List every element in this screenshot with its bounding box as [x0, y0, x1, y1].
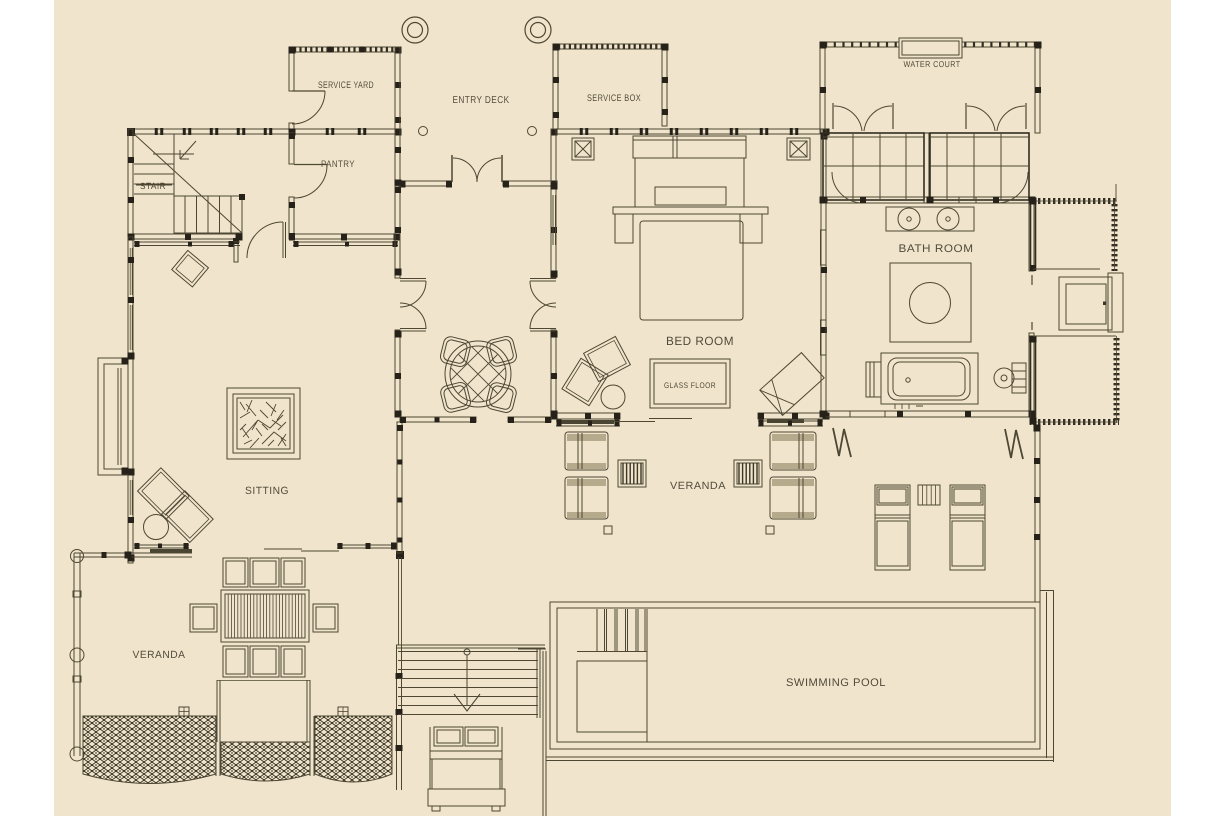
svg-text:GLASS FLOOR: GLASS FLOOR [664, 381, 716, 390]
svg-text:STAIR: STAIR [140, 181, 166, 191]
svg-text:WATER COURT: WATER COURT [904, 59, 961, 69]
svg-text:ENTRY DECK: ENTRY DECK [453, 95, 510, 106]
svg-text:SERVICE BOX: SERVICE BOX [587, 93, 641, 104]
svg-text:VERANDA: VERANDA [133, 649, 186, 661]
svg-text:SITTING: SITTING [245, 485, 289, 497]
svg-text:VERANDA: VERANDA [670, 480, 726, 492]
svg-text:SERVICE YARD: SERVICE YARD [318, 80, 374, 91]
svg-text:BATH ROOM: BATH ROOM [899, 243, 974, 255]
svg-text:SWIMMING POOL: SWIMMING POOL [786, 677, 886, 689]
svg-text:BED ROOM: BED ROOM [666, 334, 734, 348]
svg-text:PANTRY: PANTRY [321, 159, 355, 170]
